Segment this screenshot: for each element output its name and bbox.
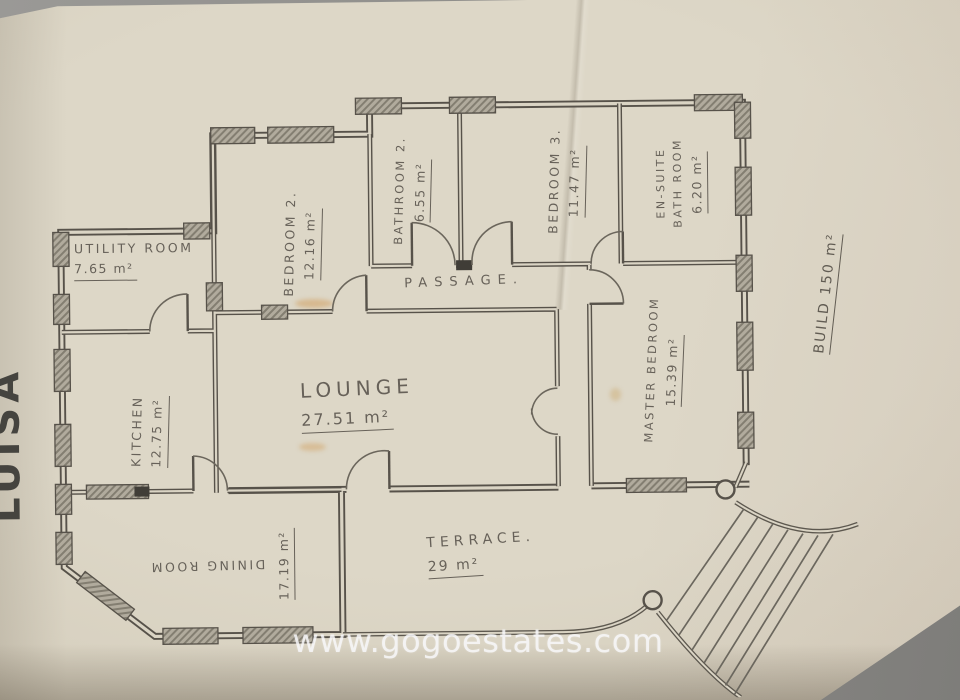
door-arcs bbox=[149, 220, 626, 491]
room-area: 7.65 m² bbox=[74, 260, 137, 281]
room-area: 6.20 m² bbox=[688, 151, 709, 214]
stair-steps bbox=[666, 508, 835, 695]
room-name: BEDROOM 2. bbox=[279, 190, 301, 297]
stair-rail-upper bbox=[736, 501, 858, 532]
room-name: BATHROOM 2. bbox=[390, 136, 410, 245]
plan-side-name-label: LUISA bbox=[0, 367, 30, 524]
room-name: LOUNGE bbox=[299, 371, 414, 407]
floor-plan: UTILITY ROOM 7.65 m² BEDROOM 2. 12.16 m²… bbox=[0, 0, 960, 700]
room-label-terrace: TERRACE. 29 m² bbox=[426, 527, 537, 580]
room-label-bedroom3: BEDROOM 3. 11.47 m² bbox=[543, 128, 587, 235]
room-area: 12.75 m² bbox=[148, 396, 170, 468]
room-name: BEDROOM 3. bbox=[543, 128, 565, 235]
room-label-ensuite: EN-SUITE BATH ROOM 6.20 m² bbox=[652, 138, 709, 228]
room-label-lounge: LOUNGE 27.51 m² bbox=[299, 371, 415, 434]
room-name: EN-SUITE bbox=[652, 138, 670, 228]
room-name-line2: BATH ROOM bbox=[669, 138, 687, 228]
room-name: KITCHEN bbox=[126, 395, 147, 467]
room-area: 15.39 m² bbox=[662, 334, 685, 407]
paper-sheet: UTILITY ROOM 7.65 m² BEDROOM 2. 12.16 m²… bbox=[0, 0, 960, 700]
terrace-and-stairs bbox=[341, 461, 859, 700]
room-label-bathroom2: BATHROOM 2. 6.55 m² bbox=[390, 136, 433, 246]
room-label-kitchen: KITCHEN 12.75 m² bbox=[126, 395, 169, 468]
room-label-bedroom2: BEDROOM 2. 12.16 m² bbox=[279, 190, 323, 297]
room-area: 6.55 m² bbox=[410, 159, 432, 222]
room-label-utility: UTILITY ROOM 7.65 m² bbox=[74, 238, 194, 281]
room-area: 17.19 m² bbox=[275, 528, 296, 600]
stair-post bbox=[644, 591, 662, 609]
stair-post bbox=[716, 480, 734, 498]
floorplan-photo: UTILITY ROOM 7.65 m² BEDROOM 2. 12.16 m²… bbox=[0, 0, 960, 700]
room-label-master-bedroom: MASTER BEDROOM 15.39 m² bbox=[640, 296, 686, 444]
room-label-dining: DINING ROOM bbox=[149, 555, 266, 578]
room-area: 12.16 m² bbox=[301, 208, 323, 280]
room-area: 29 m² bbox=[427, 554, 483, 580]
watermark-text: www.gogoestates.com bbox=[293, 622, 664, 660]
room-area-dining: 17.19 m² bbox=[273, 528, 296, 600]
room-name: DINING ROOM bbox=[149, 555, 266, 578]
room-area: 11.47 m² bbox=[565, 145, 587, 217]
room-name: UTILITY ROOM bbox=[74, 238, 194, 259]
room-area: 27.51 m² bbox=[301, 405, 394, 434]
